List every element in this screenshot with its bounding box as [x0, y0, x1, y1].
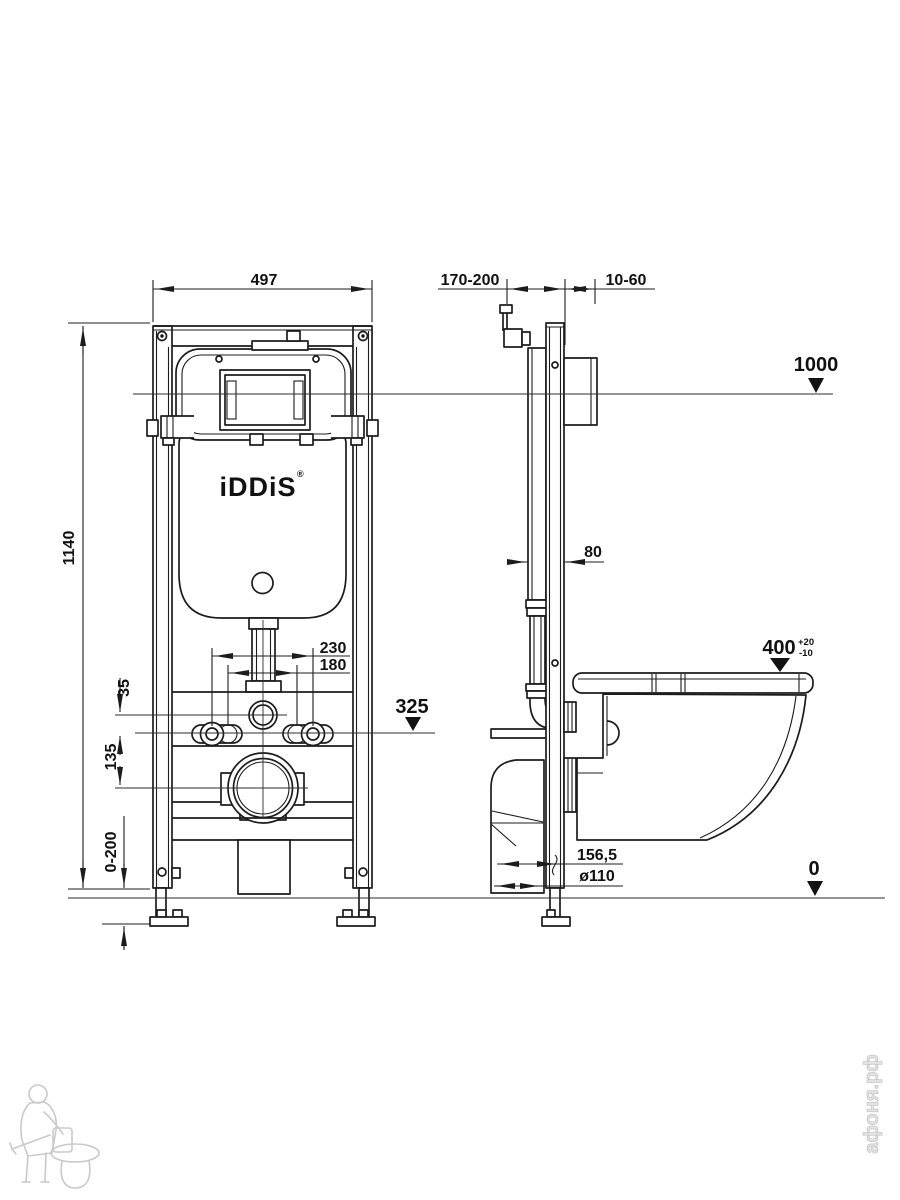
- level-flush-marker-icon: [405, 717, 421, 731]
- side-rail: [546, 323, 564, 888]
- dim-pipe-offset-label: 80: [584, 544, 602, 561]
- brand-logo: iDDiS: [219, 472, 296, 502]
- dim-drain-dia-label: ø110: [579, 868, 615, 885]
- dim-width: 497: [153, 272, 372, 322]
- plumber-logo-icon: [10, 1085, 99, 1188]
- supply-stub: [491, 729, 549, 738]
- drain-elbow: [491, 760, 544, 893]
- side-foot: [542, 888, 570, 926]
- dim-bolt-inner-label: 180: [320, 657, 347, 674]
- level-325: 325: [395, 696, 428, 731]
- flush-window: [176, 331, 351, 445]
- dim-depth-label: 170-200: [441, 272, 500, 289]
- front-view: iDDiS ®: [147, 326, 378, 926]
- connection-sleeves: [564, 702, 576, 812]
- level-seat-tol-minus: -10: [799, 648, 813, 659]
- level-floor-marker-icon: [807, 881, 823, 896]
- dim-width-label: 497: [251, 272, 278, 289]
- dim-bolt-outer-label: 230: [320, 640, 347, 657]
- supply-valve: [500, 305, 530, 347]
- dim-feet: 0-200: [102, 816, 150, 950]
- cistern: iDDiS ®: [179, 432, 346, 618]
- side-view: [491, 305, 813, 926]
- level-1000: 1000: [794, 354, 839, 393]
- flush-button-icon: [252, 573, 273, 594]
- dim-inlet-offset-label: 35: [116, 679, 133, 697]
- watermarks: афоня.рф: [10, 1054, 883, 1188]
- dim-offsets: 35 135: [103, 678, 133, 785]
- dim-drain-offset-label: 135: [103, 744, 120, 771]
- level-0: 0: [807, 858, 823, 896]
- mounting-plate: [172, 692, 353, 746]
- level-top-label: 1000: [794, 354, 839, 376]
- technical-drawing-canvas: iDDiS ®: [0, 0, 900, 1200]
- level-flush-label: 325: [395, 696, 428, 718]
- flush-plate-housing: [564, 358, 597, 425]
- level-top-marker-icon: [808, 378, 824, 393]
- brand-trademark: ®: [297, 469, 304, 479]
- stud-bolt-right: [283, 723, 333, 746]
- dim-feet-label: 0-200: [103, 831, 120, 872]
- lower-frame: [158, 818, 367, 894]
- toilet-bowl: [577, 694, 806, 840]
- level-floor-label: 0: [808, 858, 819, 880]
- side-flush-pipe: [491, 616, 551, 738]
- level-seat-tol-plus: +20: [798, 637, 814, 648]
- toilet-seat: [573, 673, 813, 693]
- level-seat-marker-icon: [770, 658, 790, 672]
- level-400: 400 +20 -10: [762, 637, 814, 672]
- dim-height: 1140: [61, 323, 150, 889]
- side-cistern: [526, 348, 548, 616]
- dim-cladding-label: 10-60: [606, 272, 647, 289]
- dim-height-label: 1140: [61, 531, 78, 566]
- flush-pipe: [246, 618, 281, 692]
- installation-drawing: iDDiS ®: [0, 0, 900, 1200]
- dim-drain-proj-label: 156,5: [577, 847, 617, 864]
- watermark-site: афоня.рф: [861, 1054, 883, 1154]
- level-seat-label: 400: [762, 637, 795, 659]
- stud-bolt-left: [192, 723, 242, 746]
